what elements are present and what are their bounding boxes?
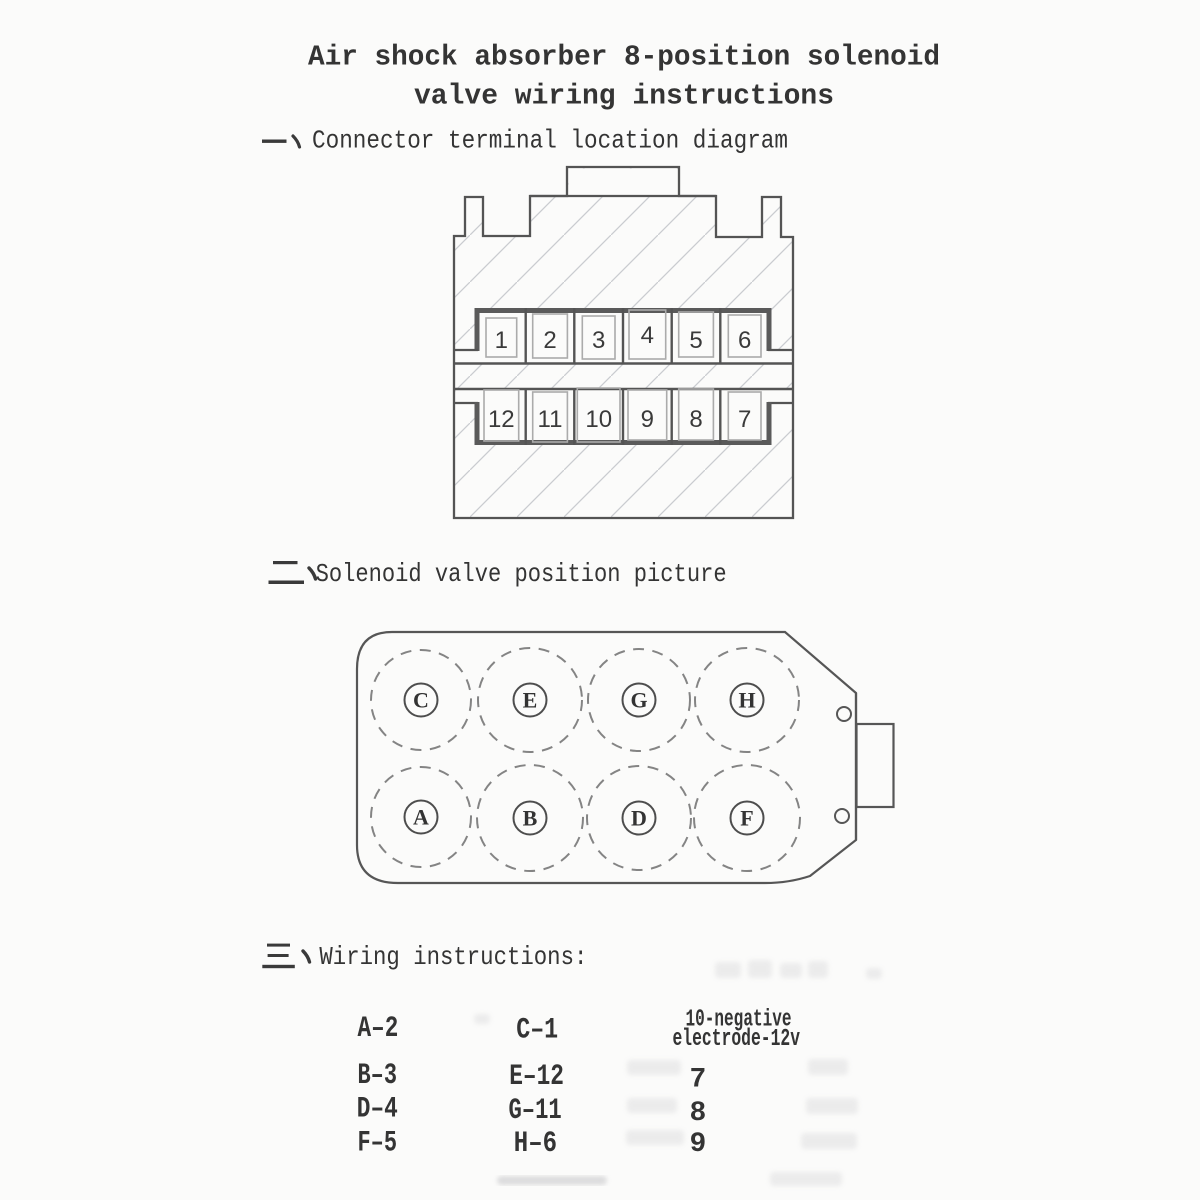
svg-text:A: A [413, 805, 429, 830]
svg-text:valve wiring instructions: valve wiring instructions [414, 80, 834, 113]
svg-text:C–1: C–1 [516, 1013, 558, 1047]
svg-text:9: 9 [690, 1129, 707, 1160]
svg-text:Wiring instructions:: Wiring instructions: [319, 942, 587, 972]
svg-text:Solenoid valve position pictur: Solenoid valve position picture [316, 559, 727, 589]
svg-text:F–5: F–5 [358, 1127, 398, 1161]
svg-text:D–4: D–4 [357, 1093, 398, 1127]
svg-text:2: 2 [543, 327, 556, 354]
svg-text:C: C [413, 688, 429, 713]
svg-text:Air shock absorber 8-position: Air shock absorber 8-position solenoid [308, 40, 940, 73]
svg-text:E: E [523, 688, 538, 713]
svg-text:H–6: H–6 [514, 1127, 557, 1161]
svg-text:electrode-12v: electrode-12v [673, 1026, 801, 1053]
svg-text:7: 7 [690, 1065, 707, 1096]
svg-text:7: 7 [738, 406, 751, 433]
svg-text:G–11: G–11 [509, 1094, 562, 1128]
svg-text:5: 5 [689, 327, 702, 354]
svg-text:6: 6 [738, 327, 751, 354]
svg-text:12: 12 [488, 406, 515, 433]
svg-text:B: B [523, 806, 538, 831]
svg-text:8: 8 [689, 406, 702, 433]
svg-text:3: 3 [592, 327, 605, 354]
svg-text:F: F [740, 806, 753, 831]
svg-text:B–3: B–3 [358, 1059, 398, 1093]
svg-text:1: 1 [495, 327, 508, 354]
svg-text:D: D [631, 806, 647, 831]
svg-text:Connector terminal location di: Connector terminal location diagram [312, 126, 788, 156]
svg-text:10: 10 [585, 406, 612, 433]
svg-text:A–2: A–2 [358, 1012, 399, 1046]
svg-text:H: H [738, 688, 755, 713]
svg-text:8: 8 [690, 1098, 707, 1129]
svg-text:9: 9 [641, 406, 654, 433]
svg-text:11: 11 [538, 406, 563, 433]
svg-text:4: 4 [641, 322, 654, 349]
svg-text:E–12: E–12 [509, 1060, 564, 1094]
svg-text:G: G [630, 688, 647, 713]
